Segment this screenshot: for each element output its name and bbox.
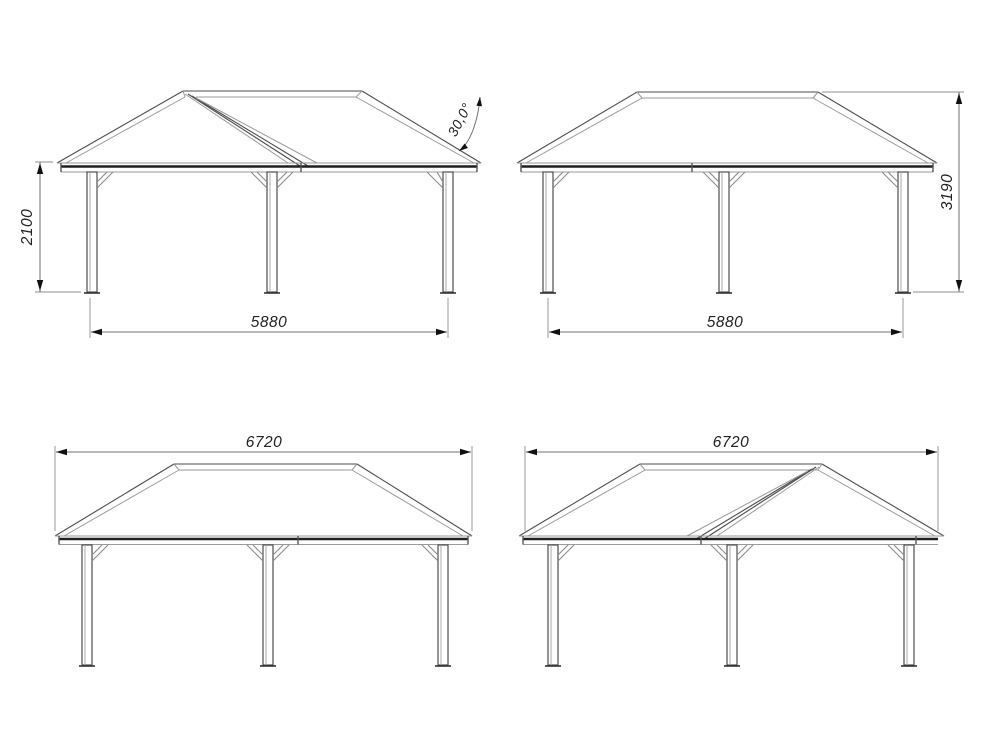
post-middle	[247, 545, 289, 666]
dimension-arrow	[956, 280, 962, 291]
dim-text-roof-pitch: 30,0°	[444, 100, 475, 139]
post-right	[882, 172, 911, 293]
post-middle	[711, 545, 753, 666]
dim-text-roof-width: 6720	[713, 434, 749, 451]
post-left	[84, 172, 113, 293]
dim-text-overall-height: 3190	[939, 174, 956, 210]
dimension-arrow	[37, 280, 43, 291]
view-elevation-hip-b: 6720	[55, 434, 472, 666]
post-middle	[703, 172, 745, 293]
view-elevation-gable-right: 6720	[519, 434, 944, 666]
post-right	[888, 545, 917, 666]
dimension-arrow	[549, 329, 560, 335]
dimension-arrow	[37, 163, 43, 174]
post-right	[422, 545, 451, 666]
drawing-sheet: 2100 5880 30,0°	[0, 0, 999, 749]
dimension-arrow	[476, 97, 482, 106]
dim-text-post-spacing: 5880	[251, 314, 287, 331]
dimension-arrow	[891, 329, 902, 335]
dim-text-roof-width: 6720	[246, 434, 282, 451]
eave-beam	[519, 536, 944, 545]
dimension-arrow	[460, 449, 471, 455]
dimension-post-spacing: 5880	[90, 298, 448, 338]
post-right	[427, 172, 456, 293]
dim-text-post-height: 2100	[19, 209, 36, 246]
roof-outline	[57, 91, 481, 166]
dimension-arrow	[926, 449, 937, 455]
cad-drawing: 2100 5880 30,0°	[0, 0, 999, 749]
dimension-arrow	[436, 329, 447, 335]
post-left	[540, 172, 569, 293]
dimension-roof-width: 6720	[55, 434, 472, 531]
roof-outline	[55, 464, 472, 536]
dimension-roof-width: 6720	[525, 434, 938, 531]
dimension-arrow	[91, 329, 102, 335]
dimension-overall-height: 3190	[822, 92, 964, 292]
dim-text-post-spacing: 5880	[707, 314, 743, 331]
eave-beam	[55, 536, 472, 545]
dimension-arrow	[526, 449, 537, 455]
view-elevation-hip-a: 3190 5880	[517, 92, 964, 338]
dimension-post-spacing: 5880	[548, 298, 903, 338]
dimension-arrow	[56, 449, 67, 455]
eave-beam	[57, 163, 481, 172]
roof-outline	[517, 92, 937, 163]
post-middle	[251, 172, 293, 293]
post-left	[79, 545, 108, 666]
eave-beam	[517, 163, 937, 172]
dimension-post-height: 2100	[19, 162, 81, 292]
view-elevation-gable-left: 2100 5880 30,0°	[19, 91, 483, 338]
roof-outline	[519, 464, 944, 539]
post-left	[545, 545, 574, 666]
dimension-arrow	[956, 93, 962, 104]
